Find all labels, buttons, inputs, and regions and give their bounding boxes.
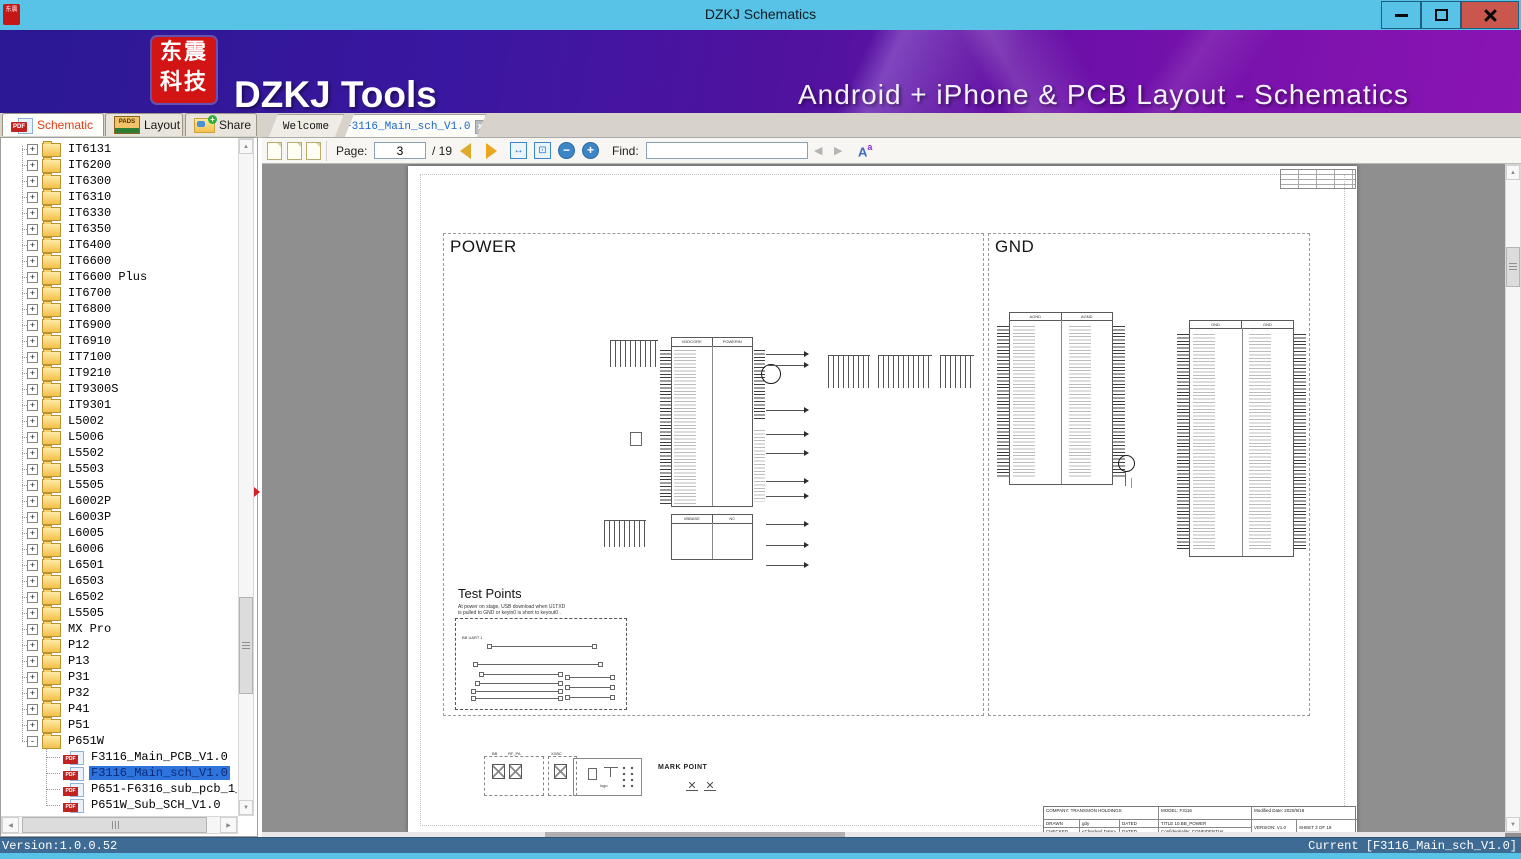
expand-icon[interactable]: + xyxy=(27,384,38,395)
folder-icon xyxy=(42,223,61,237)
title-block: COMPANY: TRANSSION HOLDINGS MODEL: F3116… xyxy=(1043,806,1356,834)
tree-item-label: L6501 xyxy=(66,558,106,572)
folder-icon xyxy=(42,239,61,253)
tree-item-label: IT6600 xyxy=(66,254,113,268)
tree-item-label: P51 xyxy=(66,718,92,732)
tree-item-label: L5502 xyxy=(66,446,106,460)
folder-icon xyxy=(42,319,61,333)
expand-icon[interactable]: + xyxy=(27,672,38,683)
expand-icon[interactable]: + xyxy=(27,512,38,523)
tree-folder-item[interactable]: +IT6200 xyxy=(1,157,237,173)
tree-folder-item[interactable]: +IT9210 xyxy=(1,365,237,381)
folder-icon xyxy=(42,415,61,429)
expand-icon[interactable]: + xyxy=(27,688,38,699)
bottom-strip xyxy=(0,853,1521,859)
shield-label-xxbc: XXBC xyxy=(551,751,562,756)
viewer-vscrollbar[interactable]: ▲ ▼ xyxy=(1505,164,1521,833)
tab-layout-label: Layout xyxy=(144,118,180,132)
tree-item-label: IT6200 xyxy=(66,158,113,172)
folder-icon xyxy=(42,159,61,173)
expand-icon[interactable]: + xyxy=(27,192,38,203)
expand-icon[interactable]: + xyxy=(27,176,38,187)
folder-icon xyxy=(42,623,61,637)
gnd-section-title: GND xyxy=(995,237,1034,257)
tree-item-label: L6502 xyxy=(66,590,106,604)
expand-icon[interactable]: + xyxy=(27,624,38,635)
splitter-collapse-icon[interactable] xyxy=(254,487,260,497)
tree-item-label: IT6400 xyxy=(66,238,113,252)
tree-file-item[interactable]: PDFF3116_Main_PCB_V1.0 xyxy=(1,749,237,765)
folder-icon xyxy=(42,735,61,749)
page-label: Page: xyxy=(336,144,367,158)
revision-table xyxy=(1280,169,1356,189)
expand-icon[interactable]: + xyxy=(27,368,38,379)
tab-layout[interactable]: PADS Layout xyxy=(105,113,183,136)
tree-folder-item[interactable]: +P51 xyxy=(1,717,237,733)
tree-item-label: L6002P xyxy=(66,494,113,508)
test-points-label: BB UART 1 xyxy=(462,635,483,640)
folder-icon xyxy=(42,399,61,413)
tree-item-label: IT6300 xyxy=(66,174,113,188)
banner: 东震 科技 DZKJ Tools Android + iPhone & PCB … xyxy=(0,30,1521,113)
page-number-input[interactable] xyxy=(374,142,426,159)
zoom-in-icon[interactable]: + xyxy=(582,142,599,159)
expand-icon[interactable]: + xyxy=(27,160,38,171)
document-panel: Page: / 19 ↔ ⊡ − + Find: ◀ ▶ Aa POWER xyxy=(262,137,1521,837)
tb-dated1: DATED xyxy=(1119,819,1158,827)
window-title: DZKJ Schematics xyxy=(0,6,1521,22)
fit-width-icon[interactable]: ↔ xyxy=(510,142,527,159)
prev-page-icon[interactable] xyxy=(460,143,471,159)
app-name: DZKJ Tools xyxy=(234,74,437,113)
file-tree: +IT6131+IT6200+IT6300+IT6310+IT6330+IT63… xyxy=(1,141,237,815)
tree-folder-item[interactable]: +IT6910 xyxy=(1,333,237,349)
tree-item-label: P41 xyxy=(66,702,92,716)
tb-company: COMPANY: TRANSSION HOLDINGS xyxy=(1044,807,1158,819)
folder-icon xyxy=(42,191,61,205)
folder-icon xyxy=(42,687,61,701)
tree-folder-item[interactable]: +IT6900 xyxy=(1,317,237,333)
folder-icon xyxy=(42,447,61,461)
expand-icon[interactable]: + xyxy=(27,464,38,475)
page-total: / 19 xyxy=(432,144,452,158)
tree-folder-item[interactable]: +IT6330 xyxy=(1,205,237,221)
tree-item-label: P651W xyxy=(66,734,106,748)
tree-item-label: L6003P xyxy=(66,510,113,524)
tree-folder-item[interactable]: +IT6400 xyxy=(1,237,237,253)
doc-tab-f3116-label: F3116_Main_sch_V1.0 xyxy=(345,121,470,133)
expand-icon[interactable]: + xyxy=(27,224,38,235)
pdf-icon: PDF xyxy=(11,118,33,133)
tree-item-label: L6005 xyxy=(66,526,106,540)
page-canvas: POWER VDDCOREPOWERIN VBBASENC xyxy=(408,166,1357,832)
viewer-scroll-down-icon[interactable]: ▼ xyxy=(1506,817,1520,832)
tree-item-label: F3116_Main_PCB_V1.0 xyxy=(89,750,230,764)
tree-item-label: L6503 xyxy=(66,574,106,588)
tree-item-label: L6006 xyxy=(66,542,106,556)
tree-hscrollbar[interactable]: ◀ ▶ xyxy=(1,816,238,834)
tree-folder-item[interactable]: +L6502 xyxy=(1,589,237,605)
folder-icon xyxy=(42,383,61,397)
tree-item-label: P31 xyxy=(66,670,92,684)
folder-icon xyxy=(42,543,61,557)
tree-folder-item[interactable]: +IT9301 xyxy=(1,397,237,413)
expand-icon[interactable]: + xyxy=(27,720,38,731)
expand-icon[interactable]: + xyxy=(27,304,38,315)
tree-item-label: F3116_Main_sch_V1.0 xyxy=(89,766,230,780)
tree-item-label: IT7100 xyxy=(66,350,113,364)
folder-icon xyxy=(42,367,61,381)
folder-icon xyxy=(42,351,61,365)
tree-folder-item[interactable]: +L6003P xyxy=(1,509,237,525)
folder-icon xyxy=(42,607,61,621)
expand-icon[interactable]: + xyxy=(27,448,38,459)
folder-icon xyxy=(42,271,61,285)
expand-icon[interactable]: + xyxy=(27,400,38,411)
scroll-right-icon[interactable]: ▶ xyxy=(220,817,237,833)
brand-logo: 东震 科技 xyxy=(152,37,216,103)
tree-item-label: IT6910 xyxy=(66,334,113,348)
tree-folder-item[interactable]: +IT6700 xyxy=(1,285,237,301)
tree-item-label: IT9210 xyxy=(66,366,113,380)
document-viewer[interactable]: POWER VDDCOREPOWERIN VBBASENC xyxy=(262,164,1521,837)
page-next-doc-icon[interactable] xyxy=(306,142,321,160)
pdf-file-icon: PDF xyxy=(63,767,84,780)
expand-icon[interactable]: + xyxy=(27,288,38,299)
tree-folder-item[interactable]: +MX Pro xyxy=(1,621,237,637)
tree-item-label: P13 xyxy=(66,654,92,668)
tree-folder-item[interactable]: +IT6300 xyxy=(1,173,237,189)
tb-drawn: DRAWN xyxy=(1044,819,1079,827)
tree-folder-item[interactable]: +L6503 xyxy=(1,573,237,589)
expand-icon[interactable]: + xyxy=(27,608,38,619)
font-case-icon[interactable]: Aa xyxy=(858,142,872,161)
tree-folder-item[interactable]: +P32 xyxy=(1,685,237,701)
folder-icon xyxy=(42,655,61,669)
tree-folder-item[interactable]: +IT6310 xyxy=(1,189,237,205)
folder-icon xyxy=(42,463,61,477)
folder-icon xyxy=(42,495,61,509)
folder-icon xyxy=(42,207,61,221)
tree-folder-item[interactable]: +L6501 xyxy=(1,557,237,573)
tree-folder-item[interactable]: +L5505 xyxy=(1,477,237,493)
expand-icon[interactable]: + xyxy=(27,528,38,539)
tb-modified: Modified Date: 2020/9/18 xyxy=(1251,807,1357,819)
zoom-out-icon[interactable]: − xyxy=(558,142,575,159)
pdf-file-icon: PDF xyxy=(63,799,84,812)
doc-tab-welcome[interactable]: Welcome xyxy=(268,114,344,139)
tb-title: TITLE 10.BB_POWER xyxy=(1158,819,1251,827)
doc-tab-welcome-label: Welcome xyxy=(283,121,329,133)
tree-vscroll-thumb[interactable] xyxy=(239,597,253,694)
tree-file-item[interactable]: PDFP651W_Sub_SCH_V1.0 xyxy=(1,797,237,813)
tree-folder-item[interactable]: +L5006 xyxy=(1,429,237,445)
expand-icon[interactable]: + xyxy=(27,496,38,507)
pads-icon: PADS xyxy=(114,116,140,134)
tree-folder-item[interactable]: +IT7100 xyxy=(1,349,237,365)
expand-icon[interactable]: + xyxy=(27,560,38,571)
tree-item-label: IT6330 xyxy=(66,206,113,220)
folder-icon xyxy=(42,511,61,525)
tree-folder-item[interactable]: +P31 xyxy=(1,669,237,685)
sidebar-panel: +IT6131+IT6200+IT6300+IT6310+IT6330+IT63… xyxy=(0,137,258,837)
pdf-file-icon: PDF xyxy=(63,783,84,796)
find-input[interactable] xyxy=(646,142,808,159)
tree-item-label: P651-F6316_sub_pcb_1_4L-V xyxy=(89,782,237,796)
expand-icon[interactable]: + xyxy=(27,416,38,427)
tab-schematic-label: Schematic xyxy=(37,118,93,132)
page-copy-icon[interactable] xyxy=(267,142,282,160)
status-bar: Version:1.0.0.52 Current [F3116_Main_sch… xyxy=(0,837,1521,853)
tree-folder-item[interactable]: +L6006 xyxy=(1,541,237,557)
title-bar: 东震 DZKJ Schematics xyxy=(0,0,1521,30)
tree-vscrollbar[interactable]: ▲ ▼ xyxy=(238,138,254,816)
tb-model: MODEL: F3116 xyxy=(1158,807,1251,819)
power-section-title: POWER xyxy=(450,237,517,257)
expand-icon[interactable]: + xyxy=(27,576,38,587)
tree-folder-item[interactable]: +L5505 xyxy=(1,605,237,621)
toolbar-separator xyxy=(326,141,327,161)
current-document-text: Current [F3116_Main_sch_V1.0] xyxy=(1308,839,1517,853)
tree-folder-item[interactable]: +L6002P xyxy=(1,493,237,509)
tree-folder-item[interactable]: +IT6131 xyxy=(1,141,237,157)
scroll-left-icon[interactable]: ◀ xyxy=(2,817,19,833)
folder-icon xyxy=(42,527,61,541)
version-text: Version:1.0.0.52 xyxy=(2,839,117,853)
gnd-section: GND AGNDAGND GNDGND xyxy=(988,233,1310,716)
tab-bar: PDF Schematic PADS Layout + Share Welcom… xyxy=(0,113,1521,138)
tree-folder-item[interactable]: -P651W xyxy=(1,733,237,749)
logo-line1: 东震 xyxy=(152,37,216,67)
tree-folder-item[interactable]: +L5503 xyxy=(1,461,237,477)
folder-icon xyxy=(42,559,61,573)
folder-icon xyxy=(42,303,61,317)
tree-folder-item[interactable]: +L5502 xyxy=(1,445,237,461)
tree-item-label: MX Pro xyxy=(66,622,113,636)
folder-icon xyxy=(42,175,61,189)
doc-tab-f3116[interactable]: F3116_Main_sch_V1.0 x xyxy=(344,114,486,139)
tb-drawn-by: gdy xyxy=(1079,819,1119,827)
tree-hscroll-thumb[interactable] xyxy=(22,817,207,833)
test-points-box: BB UART 1 xyxy=(455,618,627,710)
folder-icon xyxy=(42,479,61,493)
folder-icon xyxy=(42,255,61,269)
tree-folder-item[interactable]: +IT6600 Plus xyxy=(1,269,237,285)
minimize-icon xyxy=(1395,14,1408,17)
tree-item-label: IT6131 xyxy=(66,142,113,156)
folder-icon xyxy=(42,639,61,653)
tree-item-label: IT6700 xyxy=(66,286,113,300)
find-label: Find: xyxy=(612,144,639,158)
tree-item-label: L5002 xyxy=(66,414,106,428)
tree-folder-item[interactable]: +P41 xyxy=(1,701,237,717)
close-button[interactable] xyxy=(1461,1,1519,29)
find-prev-icon[interactable]: ◀ xyxy=(814,144,822,157)
expand-icon[interactable]: + xyxy=(27,256,38,267)
tree-file-item[interactable]: PDFF3116_Main_sch_V1.0 xyxy=(1,765,237,781)
next-page-icon[interactable] xyxy=(486,143,497,159)
folder-icon xyxy=(42,591,61,605)
expand-icon[interactable]: + xyxy=(27,480,38,491)
expand-icon[interactable]: + xyxy=(27,320,38,331)
share-folder-icon: + xyxy=(194,118,215,133)
expand-icon[interactable]: + xyxy=(27,704,38,715)
shield-label-bb: BB xyxy=(492,751,497,756)
shield-label-rfpa: RF_PA xyxy=(508,751,521,756)
tree-item-label: L5006 xyxy=(66,430,106,444)
tab-schematic[interactable]: PDF Schematic xyxy=(2,113,104,136)
application-window: 东震 DZKJ Schematics 东震 科技 DZKJ Tools Andr… xyxy=(0,0,1521,859)
fit-page-icon[interactable]: ⊡ xyxy=(534,142,551,159)
logo-box: logo xyxy=(573,758,642,796)
tree-item-label: IT9301 xyxy=(66,398,113,412)
tree-folder-item[interactable]: +P13 xyxy=(1,653,237,669)
tree-folder-item[interactable]: +L5002 xyxy=(1,413,237,429)
tab-share-label: Share xyxy=(219,118,251,132)
folder-icon xyxy=(42,143,61,157)
page-prev-doc-icon[interactable] xyxy=(287,142,302,160)
tree-folder-item[interactable]: +IT6600 xyxy=(1,253,237,269)
logo-line2: 科技 xyxy=(152,67,216,97)
tree-folder-item[interactable]: +P12 xyxy=(1,637,237,653)
folder-icon xyxy=(42,671,61,685)
expand-icon[interactable]: + xyxy=(27,656,38,667)
tree-folder-item[interactable]: +IT9300S xyxy=(1,381,237,397)
pdf-file-icon: PDF xyxy=(63,751,84,764)
minimize-button[interactable] xyxy=(1381,1,1421,29)
scroll-up-icon[interactable]: ▲ xyxy=(239,139,253,154)
tree-folder-item[interactable]: +L6005 xyxy=(1,525,237,541)
close-tab-icon[interactable]: x xyxy=(475,120,485,134)
collapse-icon[interactable]: - xyxy=(27,736,38,747)
folder-icon xyxy=(42,703,61,717)
tree-item-label: P32 xyxy=(66,686,92,700)
expand-icon[interactable]: + xyxy=(27,144,38,155)
mark-point-label: MARK POINT xyxy=(658,764,707,771)
expand-icon[interactable]: + xyxy=(27,544,38,555)
viewer-toolbar: Page: / 19 ↔ ⊡ − + Find: ◀ ▶ Aa xyxy=(262,138,1521,164)
find-next-icon[interactable]: ▶ xyxy=(834,144,842,157)
folder-icon xyxy=(42,575,61,589)
tree-item-label: IT6900 xyxy=(66,318,113,332)
tree-item-label: L5505 xyxy=(66,606,106,620)
expand-icon[interactable]: + xyxy=(27,208,38,219)
expand-icon[interactable]: + xyxy=(27,336,38,347)
folder-icon xyxy=(42,431,61,445)
scroll-down-icon[interactable]: ▼ xyxy=(239,800,253,815)
tree-item-label: IT6350 xyxy=(66,222,113,236)
tree-item-label: IT6310 xyxy=(66,190,113,204)
test-points-title: Test Points xyxy=(458,586,522,601)
maximize-icon xyxy=(1435,9,1448,21)
banner-tagline: Android + iPhone & PCB Layout - Schemati… xyxy=(798,79,1409,111)
logo-label: logo xyxy=(600,783,608,788)
viewer-scroll-up-icon[interactable]: ▲ xyxy=(1506,165,1520,180)
expand-icon[interactable]: + xyxy=(27,240,38,251)
expand-icon[interactable]: + xyxy=(27,272,38,283)
tree-item-label: P12 xyxy=(66,638,92,652)
tree-item-label: L5505 xyxy=(66,478,106,492)
tree-item-label: IT9300S xyxy=(66,382,120,396)
folder-icon xyxy=(42,287,61,301)
tree-file-item[interactable]: PDFP651-F6316_sub_pcb_1_4L-V xyxy=(1,781,237,797)
folder-icon xyxy=(42,335,61,349)
test-points-note2: is pulled to GND or keyin0 is short to k… xyxy=(458,610,565,616)
expand-icon[interactable]: + xyxy=(27,592,38,603)
expand-icon[interactable]: + xyxy=(27,640,38,651)
viewer-vscroll-thumb[interactable] xyxy=(1506,247,1520,287)
tree-folder-item[interactable]: +IT6350 xyxy=(1,221,237,237)
expand-icon[interactable]: + xyxy=(27,432,38,443)
expand-icon[interactable]: + xyxy=(27,352,38,363)
tree-item-label: IT6800 xyxy=(66,302,113,316)
tree-item-label: IT6600 Plus xyxy=(66,270,149,284)
tree-item-label: L5503 xyxy=(66,462,106,476)
tree-item-label: P651W_Sub_SCH_V1.0 xyxy=(89,798,223,812)
tree-folder-item[interactable]: +IT6800 xyxy=(1,301,237,317)
tab-share[interactable]: + Share xyxy=(185,113,257,136)
folder-icon xyxy=(42,719,61,733)
maximize-button[interactable] xyxy=(1421,1,1461,29)
